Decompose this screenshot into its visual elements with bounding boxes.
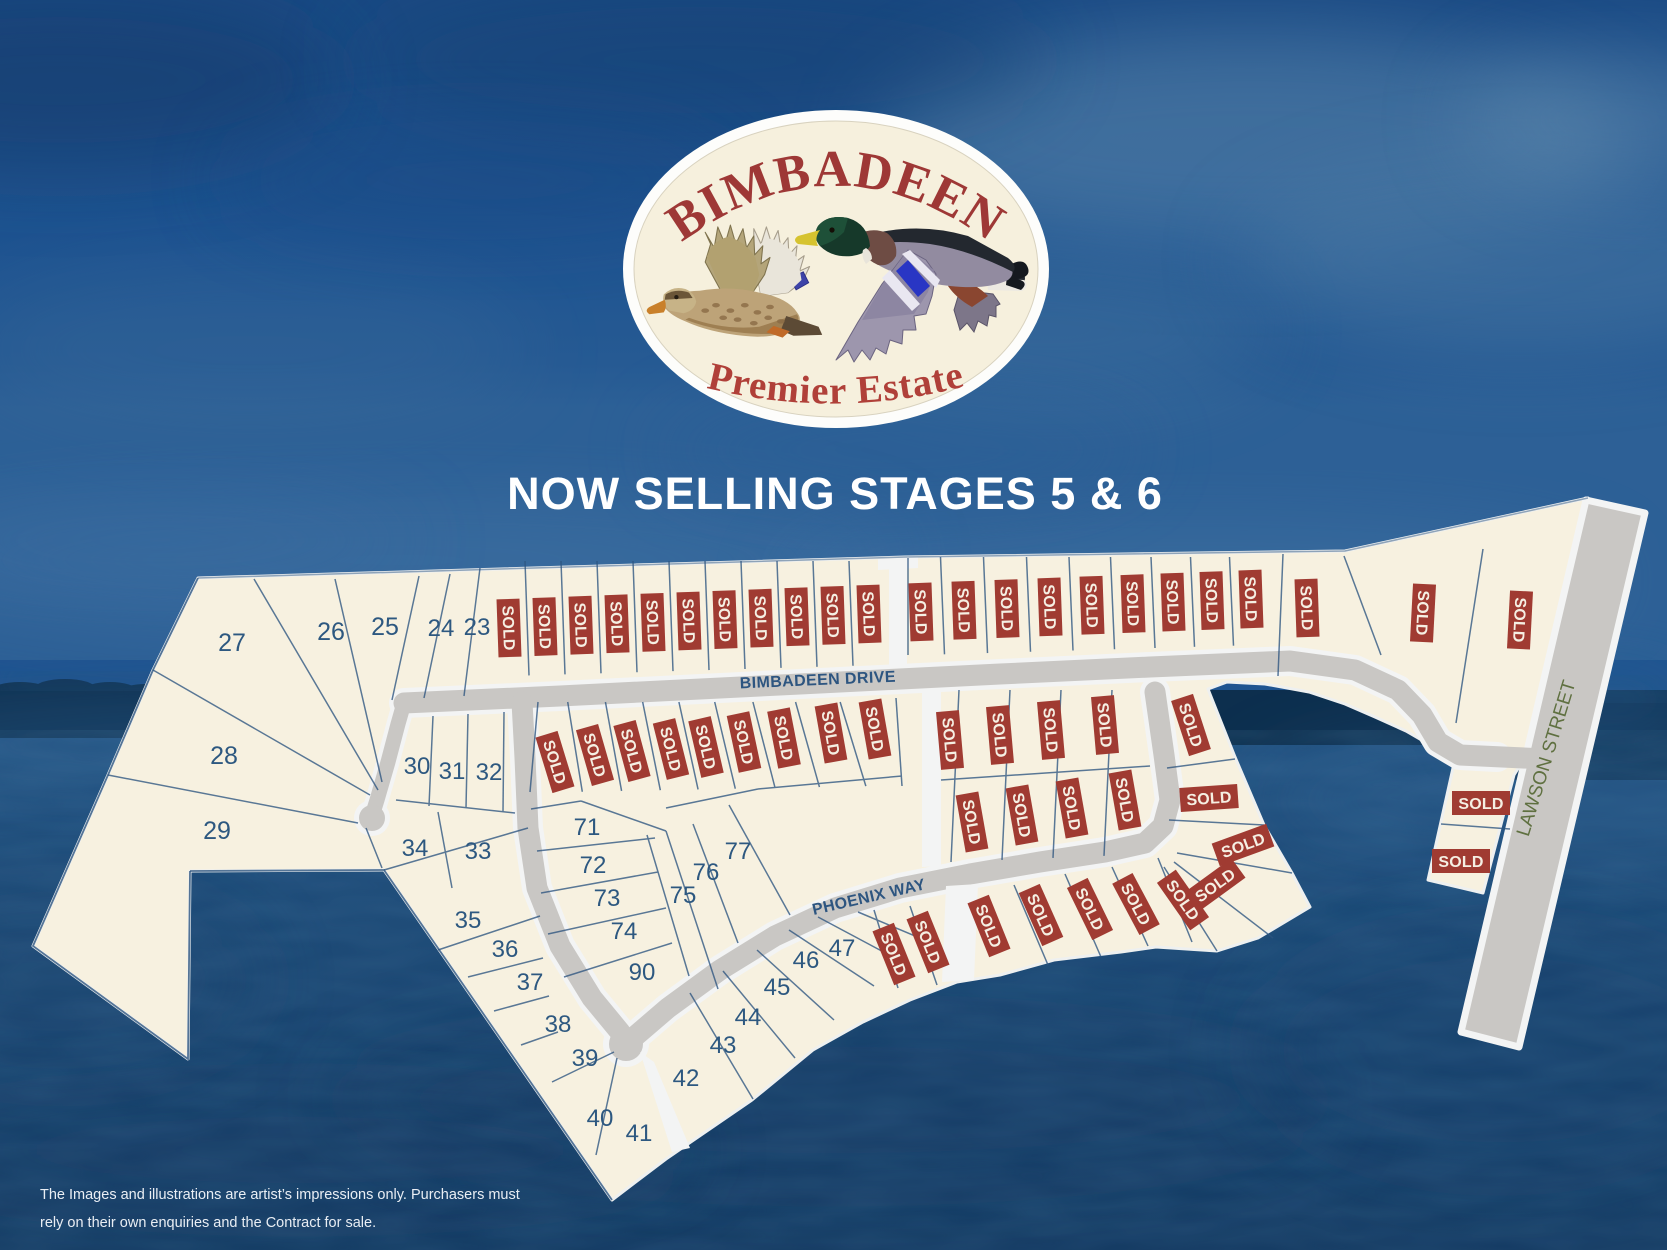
svg-text:76: 76 — [693, 859, 720, 886]
svg-text:SOLD: SOLD — [1509, 597, 1528, 643]
svg-text:77: 77 — [725, 838, 752, 865]
svg-text:SOLD: SOLD — [678, 598, 697, 644]
svg-text:33: 33 — [465, 838, 492, 865]
svg-text:SOLD: SOLD — [498, 605, 517, 651]
svg-text:73: 73 — [594, 885, 621, 912]
svg-text:29: 29 — [203, 817, 231, 845]
svg-text:24: 24 — [428, 615, 455, 642]
svg-text:71: 71 — [574, 814, 601, 841]
svg-text:SOLD: SOLD — [1412, 590, 1431, 636]
svg-text:NOW SELLING STAGES 5 & 6: NOW SELLING STAGES 5 & 6 — [507, 468, 1163, 519]
svg-text:SOLD: SOLD — [606, 601, 625, 647]
svg-text:40: 40 — [587, 1105, 614, 1132]
svg-text:SOLD: SOLD — [953, 587, 972, 633]
svg-text:SOLD: SOLD — [750, 595, 769, 641]
svg-text:25: 25 — [371, 613, 399, 641]
svg-text:SOLD: SOLD — [714, 597, 733, 643]
svg-text:27: 27 — [218, 629, 246, 657]
svg-text:43: 43 — [710, 1032, 737, 1059]
svg-text:SOLD: SOLD — [1122, 581, 1141, 627]
svg-text:23: 23 — [464, 614, 491, 641]
svg-text:The Images and illustrations a: The Images and illustrations are artist’… — [40, 1187, 520, 1203]
svg-text:SOLD: SOLD — [570, 602, 589, 648]
svg-text:35: 35 — [455, 907, 482, 934]
svg-text:SOLD: SOLD — [1201, 578, 1220, 624]
svg-text:SOLD: SOLD — [822, 593, 841, 639]
svg-text:rely on their own enquiries an: rely on their own enquiries and the Cont… — [40, 1215, 376, 1231]
svg-text:47: 47 — [829, 935, 856, 962]
svg-text:75: 75 — [670, 882, 697, 909]
svg-text:90: 90 — [629, 959, 656, 986]
svg-text:31: 31 — [439, 758, 466, 785]
svg-text:SOLD: SOLD — [858, 591, 877, 637]
svg-text:SOLD: SOLD — [786, 594, 805, 640]
svg-text:SOLD: SOLD — [1186, 789, 1232, 809]
svg-text:46: 46 — [793, 947, 820, 974]
svg-text:SOLD: SOLD — [1458, 796, 1503, 813]
svg-text:32: 32 — [476, 759, 503, 786]
svg-text:42: 42 — [673, 1065, 700, 1092]
svg-text:28: 28 — [210, 742, 238, 770]
svg-text:SOLD: SOLD — [1240, 576, 1259, 622]
svg-text:SOLD: SOLD — [996, 586, 1015, 632]
svg-text:41: 41 — [626, 1120, 653, 1147]
svg-text:37: 37 — [517, 969, 544, 996]
svg-text:34: 34 — [402, 835, 429, 862]
svg-text:SOLD: SOLD — [642, 600, 661, 646]
svg-text:26: 26 — [317, 618, 345, 646]
svg-text:39: 39 — [572, 1045, 599, 1072]
svg-text:SOLD: SOLD — [1039, 584, 1058, 630]
svg-text:SOLD: SOLD — [534, 604, 553, 650]
svg-text:SOLD: SOLD — [910, 589, 929, 635]
svg-text:30: 30 — [404, 753, 431, 780]
svg-text:SOLD: SOLD — [1438, 854, 1483, 871]
svg-text:45: 45 — [764, 974, 791, 1001]
svg-text:SOLD: SOLD — [1081, 582, 1100, 628]
svg-text:72: 72 — [580, 852, 607, 879]
svg-text:38: 38 — [545, 1011, 572, 1038]
svg-text:SOLD: SOLD — [1296, 585, 1315, 631]
svg-text:SOLD: SOLD — [1162, 579, 1181, 625]
svg-text:36: 36 — [492, 936, 519, 963]
svg-text:44: 44 — [735, 1004, 762, 1031]
svg-text:74: 74 — [611, 918, 638, 945]
